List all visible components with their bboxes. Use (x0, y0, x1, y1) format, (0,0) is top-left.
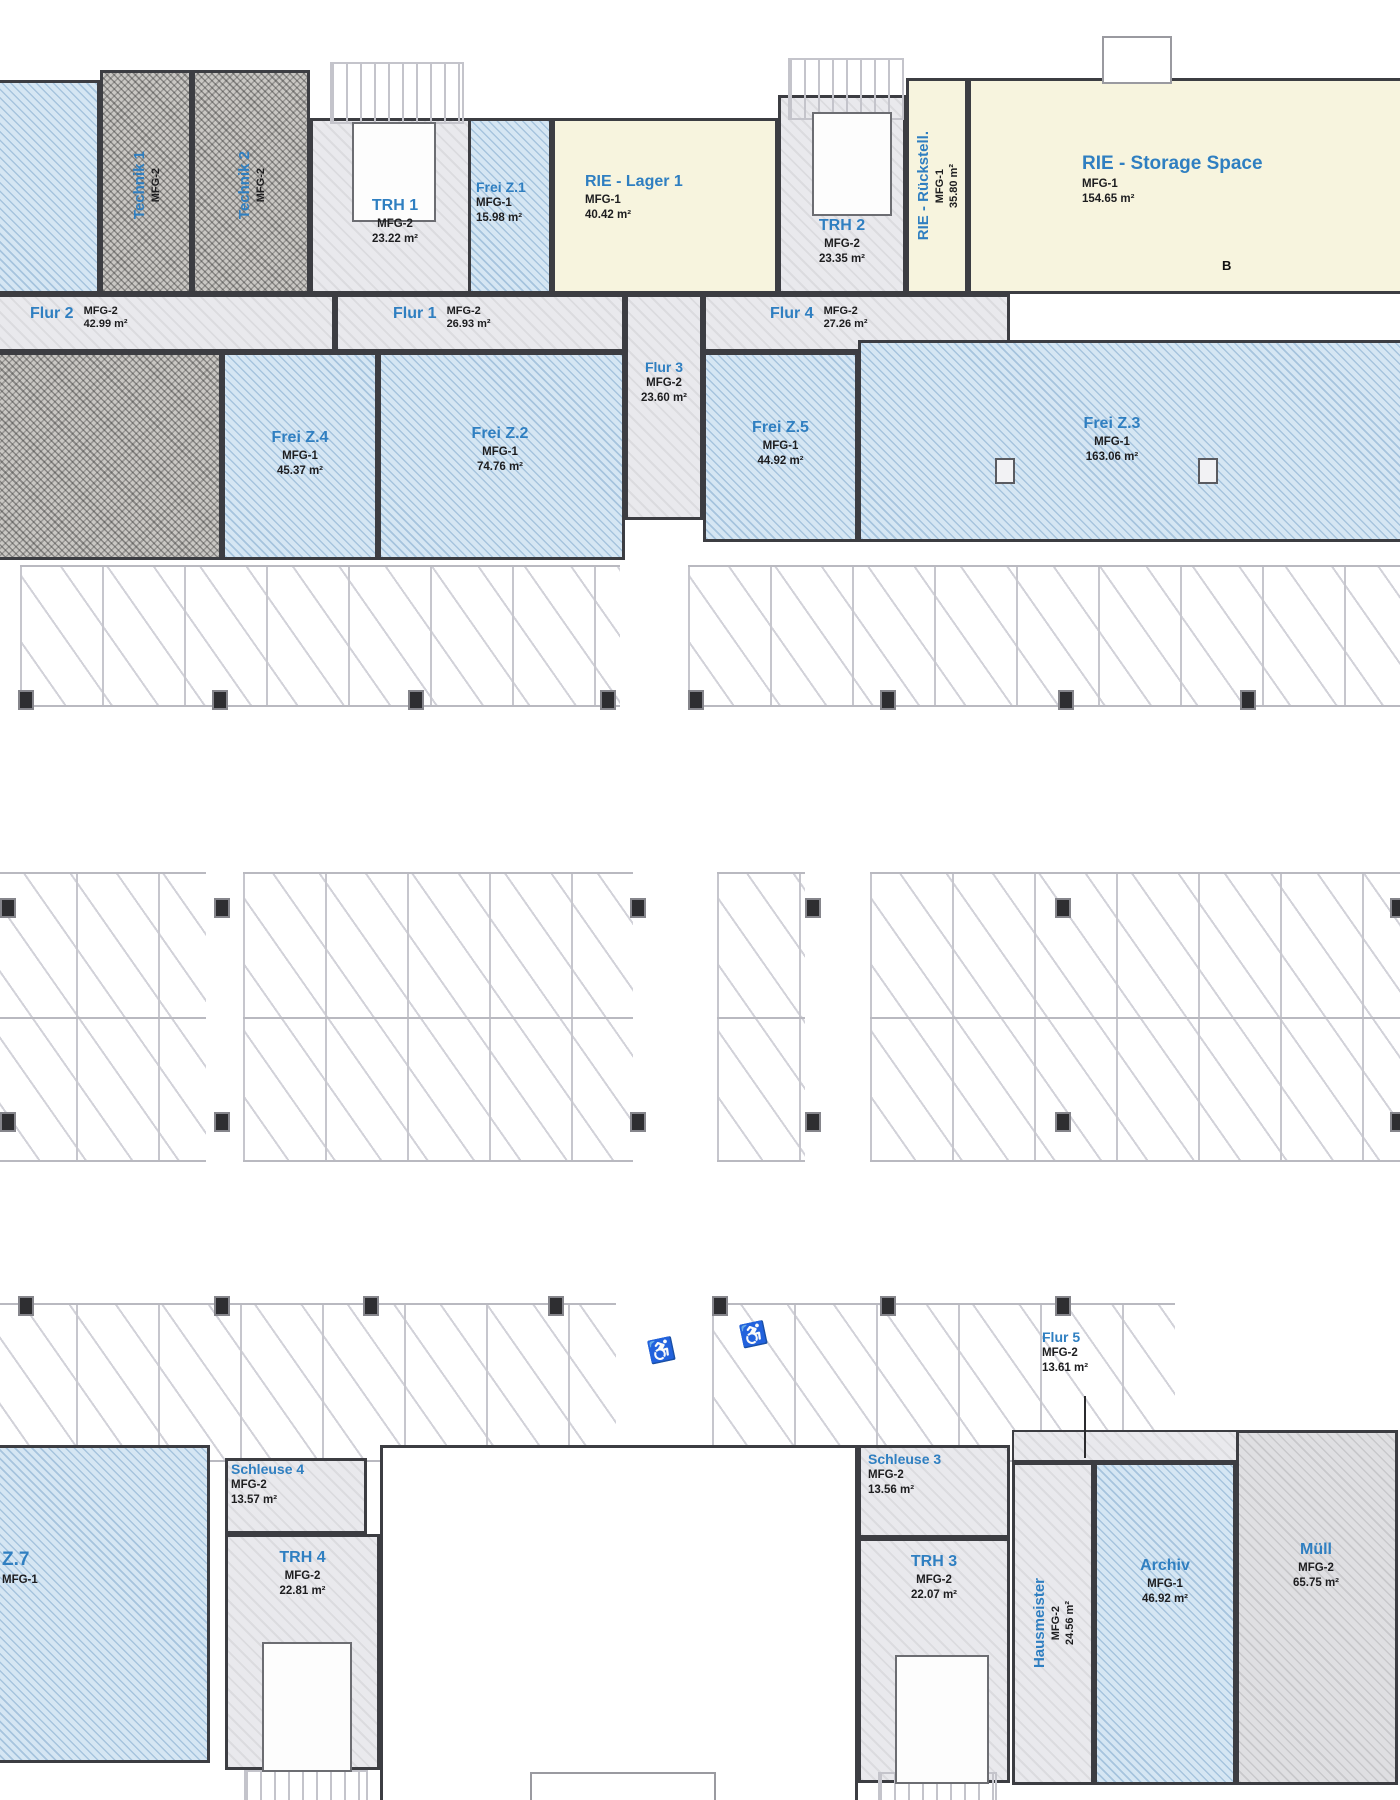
wheelchair-icon: ♿ (738, 1319, 770, 1350)
column-marker (0, 1112, 16, 1132)
room-name: TRH 4 (240, 1548, 365, 1569)
column-marker (712, 1296, 728, 1316)
column-marker (630, 898, 646, 918)
room-area: 45.37 m² (232, 464, 368, 479)
room-hausmeister-label: Hausmeister MFG-2 24.56 m² (1016, 1478, 1090, 1768)
room-area: 74.76 m² (440, 460, 560, 475)
grid-marker-b: B (1222, 258, 1231, 273)
room-area: 42.99 m² (84, 318, 128, 331)
room-trh1-label: TRH 1 MFG-2 23.22 m² (330, 196, 460, 247)
room-code: MFG-2 (870, 1573, 998, 1588)
column-marker (408, 690, 424, 710)
room-code: MFG-2 (231, 1478, 363, 1493)
room-name: Technik 2 (236, 151, 253, 219)
room-area: 40.42 m² (585, 208, 765, 223)
room-code: MFG-1 (1082, 177, 1322, 192)
room-schleuse3-label: Schleuse 3 MFG-2 13.56 m² (868, 1450, 1004, 1498)
room-trh3-label: TRH 3 MFG-2 22.07 m² (870, 1552, 998, 1603)
parking-stalls (0, 1303, 616, 1462)
courtyard-notch (530, 1772, 716, 1800)
corridor-flur3-label: Flur 3 MFG-2 23.60 m² (626, 358, 702, 406)
stair-flight-icon (788, 58, 904, 120)
room-code: MFG-2 (778, 237, 906, 252)
column-marker (880, 1296, 896, 1316)
room-area: 23.60 m² (626, 391, 702, 406)
room-name: Frei Z.1 (476, 178, 548, 196)
room-name: Frei Z.2 (440, 424, 560, 445)
room-name: Schleuse 4 (231, 1460, 363, 1478)
parking-stalls (688, 565, 1400, 707)
column-marker (214, 1112, 230, 1132)
room-freiz4-label: Frei Z.4 MFG-1 45.37 m² (232, 428, 368, 479)
room-muell-label: Müll MFG-2 65.75 m² (1246, 1540, 1386, 1591)
room-area: 154.65 m² (1082, 192, 1322, 207)
room-area: 23.35 m² (778, 252, 906, 267)
room-code: MFG-1 (585, 193, 765, 208)
room-archiv-label: Archiv MFG-1 46.92 m² (1100, 1556, 1230, 1607)
column-marker (1055, 1296, 1071, 1316)
flur5-leader-line (1084, 1396, 1086, 1458)
room-code: MFG-1 (1100, 1577, 1230, 1592)
room-code: MFG-2 (1042, 1346, 1152, 1361)
column-marker (363, 1296, 379, 1316)
column-marker (805, 898, 821, 918)
column-marker (1058, 690, 1074, 710)
column-marker (1240, 690, 1256, 710)
column-marker (212, 690, 228, 710)
column-marker (600, 690, 616, 710)
wheelchair-icon: ♿ (646, 1335, 678, 1366)
room-name: TRH 1 (330, 196, 460, 217)
room-code: MFG-2 (240, 1569, 365, 1584)
room-code: MFG-2 (868, 1468, 1004, 1483)
room-name: Flur 4 (770, 305, 814, 323)
column-marker (0, 898, 16, 918)
room-trh2-label: TRH 2 MFG-2 23.35 m² (778, 216, 906, 267)
room-schleuse4-label: Schleuse 4 MFG-2 13.57 m² (231, 1460, 363, 1508)
room-technik-1-label: Technik 1 MFG-2 (104, 90, 188, 280)
room-area: 46.92 m² (1100, 1592, 1230, 1607)
room-name: TRH 2 (778, 216, 906, 237)
room-area: 15.98 m² (476, 211, 548, 226)
room-area: 35.80 m² (948, 164, 960, 208)
stairwell-trh4 (262, 1642, 352, 1772)
room-name: Müll (1246, 1540, 1386, 1561)
room-code: MFG-1 (2, 1573, 102, 1588)
room-freiz3-label: Frei Z.3 MFG-1 163.06 m² (1012, 414, 1212, 465)
room-area: 22.81 m² (240, 1584, 365, 1599)
room-z7 (0, 1445, 210, 1763)
room-code: MFG-1 (440, 445, 560, 460)
room-name: Flur 5 (1042, 1328, 1152, 1346)
room-code: MFG-2 (1246, 1561, 1386, 1576)
room-area: 44.92 m² (713, 454, 848, 469)
room-code: MFG-2 (447, 305, 491, 318)
room-code: MFG-2 (84, 305, 128, 318)
room-z7-label: Z.7 MFG-1 (2, 1548, 102, 1588)
corridor-flur5-label: Flur 5 MFG-2 13.61 m² (1042, 1328, 1152, 1376)
room-name: Z.7 (2, 1548, 102, 1573)
room-name: Frei Z.5 (713, 418, 848, 439)
room-rueckstell-label: RIE - Rückstell. MFG-1 35.80 m² (908, 88, 966, 284)
room-area: 26.93 m² (447, 318, 491, 331)
room-name: Hausmeister (1031, 1578, 1048, 1668)
room-name: Flur 2 (30, 305, 74, 323)
room-code: MFG-1 (1012, 435, 1212, 450)
column-marker (805, 1112, 821, 1132)
parking-stalls (870, 872, 1400, 1162)
roof-access-outline (1102, 36, 1172, 84)
room-area: 13.61 m² (1042, 1361, 1152, 1376)
room-area: 27.26 m² (824, 318, 868, 331)
parking-stalls (243, 872, 633, 1162)
column-marker (1055, 1112, 1071, 1132)
room-lager1-label: RIE - Lager 1 MFG-1 40.42 m² (585, 172, 765, 223)
room-code: MFG-2 (626, 376, 702, 391)
room-name: Technik 1 (131, 151, 148, 219)
column-marker (688, 690, 704, 710)
corridor-flur2-label: Flur 2 MFG-2 42.99 m² (30, 305, 128, 330)
room-code: MFG-2 (330, 217, 460, 232)
room-partial-left (0, 80, 100, 294)
room-code: MFG-1 (476, 196, 548, 211)
room-code: MFG-2 (255, 168, 267, 202)
room-area: 24.56 m² (1064, 1601, 1076, 1645)
room-code: MFG-2 (1050, 1606, 1062, 1640)
room-name: Frei Z.4 (232, 428, 368, 449)
column-marker (630, 1112, 646, 1132)
room-area: 23.22 m² (330, 232, 460, 247)
room-muell (1236, 1430, 1398, 1785)
room-code: MFG-2 (824, 305, 868, 318)
column-marker (1390, 898, 1400, 918)
room-freiz5-label: Frei Z.5 MFG-1 44.92 m² (713, 418, 848, 469)
parking-stalls (717, 872, 805, 1162)
column-marker (548, 1296, 564, 1316)
room-freiz1-label: Frei Z.1 MFG-1 15.98 m² (476, 178, 548, 226)
room-code: MFG-2 (150, 168, 162, 202)
room-name: RIE - Lager 1 (585, 172, 765, 193)
room-name: Schleuse 3 (868, 1450, 1004, 1468)
room-area: 163.06 m² (1012, 450, 1212, 465)
room-area: 13.56 m² (868, 1483, 1004, 1498)
room-freiz2-label: Frei Z.2 MFG-1 74.76 m² (440, 424, 560, 475)
stair-flight-icon (330, 62, 464, 124)
column-marker (214, 898, 230, 918)
room-archiv (1094, 1462, 1236, 1785)
column-marker (1055, 898, 1071, 918)
room-name: Archiv (1100, 1556, 1230, 1577)
room-name: RIE - Rückstell. (915, 131, 932, 240)
room-name: Flur 3 (626, 358, 702, 376)
room-area: 65.75 m² (1246, 1576, 1386, 1591)
room-code: MFG-1 (232, 449, 368, 464)
column-marker (1390, 1112, 1400, 1132)
column-marker (18, 690, 34, 710)
parking-stalls (20, 565, 620, 707)
stair-flight-icon (244, 1770, 368, 1800)
room-technik-2-label: Technik 2 MFG-2 (206, 90, 296, 280)
room-name: RIE - Storage Space (1082, 152, 1322, 177)
column-marker (18, 1296, 34, 1316)
courtyard (380, 1445, 858, 1800)
stairwell-trh2 (812, 112, 892, 216)
corridor-flur1-label: Flur 1 MFG-2 26.93 m² (393, 305, 491, 330)
room-name: TRH 3 (870, 1552, 998, 1573)
parking-stalls (0, 872, 206, 1162)
room-storage-label: RIE - Storage Space MFG-1 154.65 m² (1082, 152, 1322, 207)
room-area: 13.57 m² (231, 1493, 363, 1508)
room-area: 22.07 m² (870, 1588, 998, 1603)
stairwell-trh3 (895, 1655, 989, 1784)
corridor-flur3 (625, 294, 703, 520)
room-code: MFG-1 (713, 439, 848, 454)
corridor-flur4-label: Flur 4 MFG-2 27.26 m² (770, 305, 868, 330)
room-partial-dark-left (0, 352, 222, 560)
room-name: Frei Z.3 (1012, 414, 1212, 435)
floor-plan: Technik 1 MFG-2 Technik 2 MFG-2 TRH 1 MF… (0, 0, 1400, 1800)
column-marker (880, 690, 896, 710)
room-trh4-label: TRH 4 MFG-2 22.81 m² (240, 1548, 365, 1599)
room-code: MFG-1 (934, 169, 946, 203)
column-marker (214, 1296, 230, 1316)
room-name: Flur 1 (393, 305, 437, 323)
